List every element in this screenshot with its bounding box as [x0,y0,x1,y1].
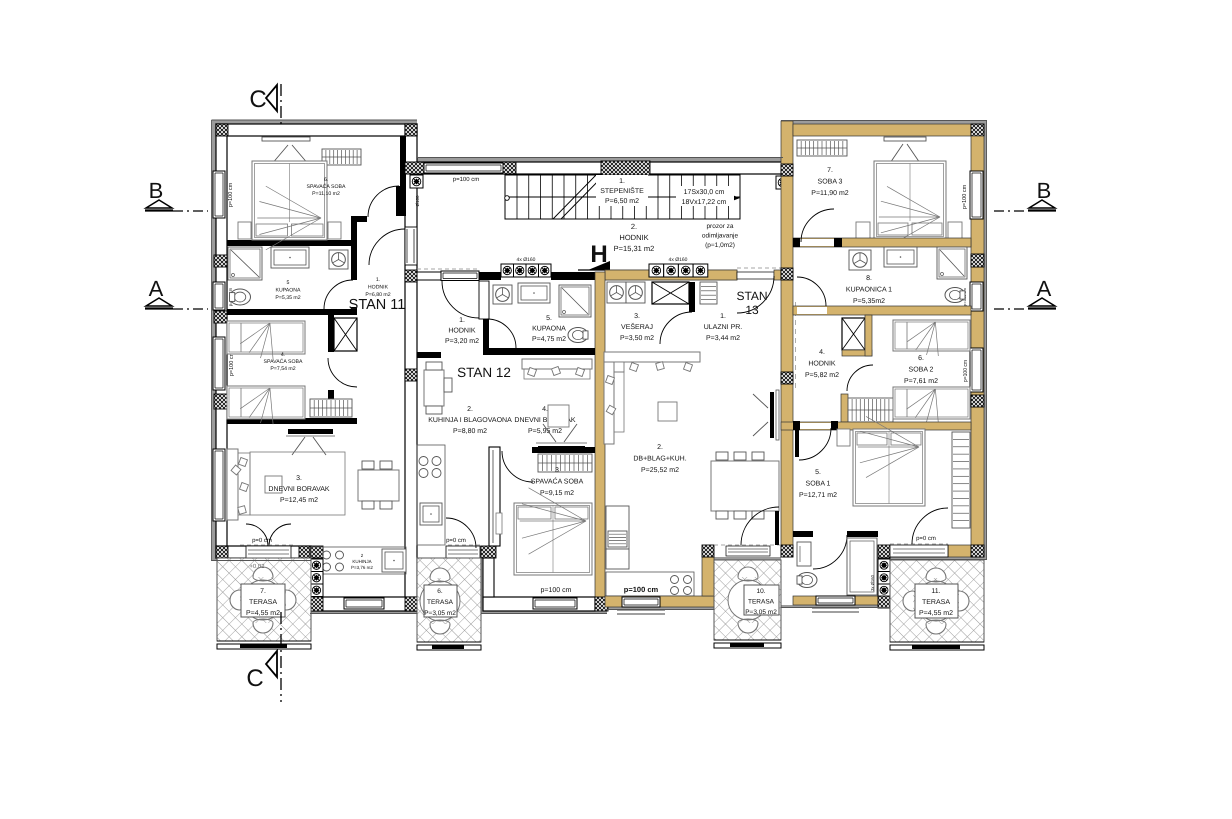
svg-text:P=4,55 m2: P=4,55 m2 [246,610,280,617]
svg-text:p=100 cm: p=100 cm [962,184,968,209]
svg-text:P=7,61 m2: P=7,61 m2 [904,378,938,385]
svg-text:6.: 6. [324,177,328,183]
svg-text:HODNIK: HODNIK [368,284,389,290]
svg-text:P=12,45 m2: P=12,45 m2 [280,497,318,504]
svg-text:+0,02: +0,02 [249,564,265,570]
svg-text:2.: 2. [467,406,473,413]
svg-text:2.: 2. [657,444,663,451]
svg-text:HODNIK: HODNIK [448,327,476,334]
svg-text:TERASA: TERASA [922,599,950,606]
svg-text:C: C [246,665,263,692]
svg-text:13: 13 [745,303,759,317]
svg-text:5: 5 [287,280,290,286]
svg-text:B: B [1037,178,1052,203]
svg-text:3x Ø160: 3x Ø160 [870,574,875,591]
svg-text:4.: 4. [281,352,285,358]
svg-text:p=100 cm: p=100 cm [963,360,969,382]
svg-text:p=100 cm: p=100 cm [624,585,659,594]
svg-text:P=4,55 m2: P=4,55 m2 [919,610,953,617]
svg-text:6.: 6. [437,588,443,595]
svg-text:P=3,20 m2: P=3,20 m2 [445,338,479,345]
svg-text:A: A [1037,276,1052,301]
svg-text:1.: 1. [619,178,625,185]
svg-text:SOBA 1: SOBA 1 [806,480,831,487]
svg-text:2.: 2. [631,222,637,231]
svg-text:P=11,10 m2: P=11,10 m2 [312,191,340,197]
svg-text:18Vx17,22 cm: 18Vx17,22 cm [682,199,727,206]
svg-text:HODNIK: HODNIK [619,233,648,242]
svg-text:3: 3 [555,467,559,474]
svg-text:3.: 3. [634,313,640,320]
svg-text:4.: 4. [542,406,548,413]
svg-text:7.: 7. [827,167,833,174]
svg-text:A: A [149,276,164,301]
svg-text:SPAVAĆA SOBA: SPAVAĆA SOBA [531,476,584,485]
svg-text:p=100 cm: p=100 cm [229,351,235,376]
svg-text:p=100 cm: p=100 cm [541,587,572,594]
svg-text:P=3,05 m2: P=3,05 m2 [745,609,777,616]
svg-text:11.: 11. [931,588,940,595]
svg-text:10.: 10. [756,588,765,595]
svg-text:17Sx30,0 cm: 17Sx30,0 cm [684,189,725,196]
svg-text:4x Ø160: 4x Ø160 [669,257,688,263]
svg-text:4.: 4. [819,349,825,356]
svg-text:P=6,50 m2: P=6,50 m2 [605,198,639,205]
svg-text:TERASA: TERASA [427,599,454,606]
svg-text:P=3,05 m2: P=3,05 m2 [424,610,456,617]
svg-text:p=100 cm: p=100 cm [228,182,234,207]
svg-text:p=100 cm: p=100 cm [453,177,480,183]
svg-text:P=5,35 m2: P=5,35 m2 [275,295,300,301]
svg-text:5.: 5. [815,469,821,476]
svg-text:DNEVNI BORAVAK: DNEVNI BORAVAK [268,486,330,493]
svg-text:P=25,52 m2: P=25,52 m2 [641,467,679,474]
svg-text:SOBA 3: SOBA 3 [818,178,843,185]
svg-text:(p=1,0m2): (p=1,0m2) [705,242,735,249]
svg-text:P=15,31 m2: P=15,31 m2 [614,244,655,253]
svg-text:SPAVAĆA SOBA: SPAVAĆA SOBA [264,358,303,365]
svg-text:ULAZNI PR.: ULAZNI PR. [704,324,743,331]
svg-text:odimljavanje: odimljavanje [702,232,739,239]
svg-text:p=0 cm: p=0 cm [446,538,466,544]
svg-text:HODNIK: HODNIK [808,360,836,367]
svg-text:P=12,71 m2: P=12,71 m2 [799,492,837,499]
svg-text:4x Ø160: 4x Ø160 [517,257,536,263]
svg-text:TERASA: TERASA [249,599,277,606]
svg-text:STAN 12: STAN 12 [457,365,511,380]
svg-text:C: C [249,86,266,113]
svg-text:KUHINJA I BLAGOVAONA: KUHINJA I BLAGOVAONA [428,417,512,424]
svg-text:5.: 5. [546,315,552,322]
svg-text:STAN 11: STAN 11 [349,297,406,313]
svg-text:KUPAONA: KUPAONA [532,325,566,332]
svg-text:1.: 1. [720,313,726,320]
svg-text:P=7,54 m2: P=7,54 m2 [270,366,295,372]
svg-text:Ø160: Ø160 [415,195,420,207]
svg-text:STEPENIŠTE: STEPENIŠTE [600,186,644,195]
svg-text:P=3,50 m2: P=3,50 m2 [620,335,654,342]
svg-text:P=5,95 m2: P=5,95 m2 [528,428,562,435]
svg-text:P=11,90 m2: P=11,90 m2 [811,190,849,197]
svg-text:P=5,82 m2: P=5,82 m2 [805,372,839,379]
svg-text:3.: 3. [296,475,302,482]
svg-text:1.: 1. [459,317,465,324]
svg-text:SOBA 2: SOBA 2 [909,366,934,373]
svg-text:P=3,76 m2: P=3,76 m2 [351,565,373,570]
svg-text:DB+BLAG+KUH.: DB+BLAG+KUH. [633,455,686,462]
svg-text:TERASA: TERASA [748,598,775,605]
svg-text:prozor za: prozor za [706,223,733,230]
svg-text:p=0 cm: p=0 cm [916,536,936,542]
svg-text:6.: 6. [918,355,924,362]
svg-text:SPAVAĆA SOBA: SPAVAĆA SOBA [307,183,346,190]
svg-text:P=9,15 m2: P=9,15 m2 [540,490,574,497]
svg-text:1.: 1. [376,277,380,283]
svg-text:p=0 cm: p=0 cm [252,538,272,544]
svg-text:KUPAONA: KUPAONA [276,287,302,293]
svg-text:P=3,44 m2: P=3,44 m2 [706,335,740,342]
svg-text:KUHINJA: KUHINJA [352,559,371,564]
svg-text:7.: 7. [260,588,266,595]
svg-text:P=8,80 m2: P=8,80 m2 [453,428,487,435]
svg-text:B: B [149,178,164,203]
svg-text:VEŠERAJ: VEŠERAJ [621,322,653,331]
svg-text:P=5,35m2: P=5,35m2 [853,298,885,305]
svg-text:KUPAONICA 1: KUPAONICA 1 [846,286,892,293]
svg-text:STAN: STAN [736,289,767,303]
svg-text:P=4,75 m2: P=4,75 m2 [532,336,566,343]
svg-text:8.: 8. [866,275,872,282]
